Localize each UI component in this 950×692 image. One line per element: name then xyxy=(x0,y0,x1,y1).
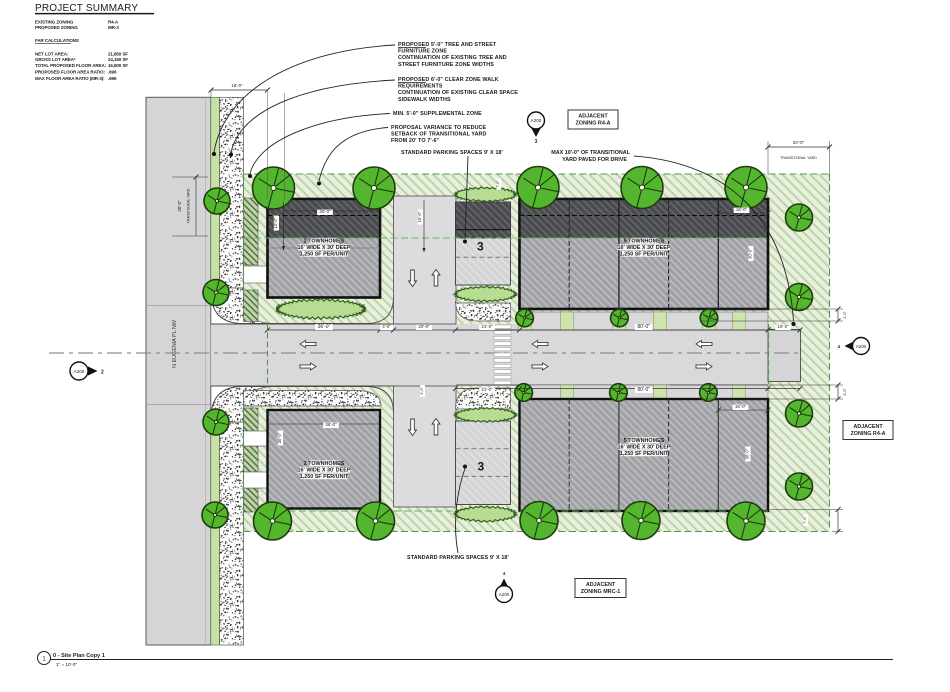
svg-text:7'-6": 7'-6" xyxy=(496,180,500,188)
svg-text:CONTINUATION OF EXISTING CLEAR: CONTINUATION OF EXISTING CLEAR SPACE xyxy=(398,90,518,96)
svg-text:4: 4 xyxy=(837,344,840,349)
svg-text:ZONING R4-A: ZONING R4-A xyxy=(850,431,885,437)
svg-text:A200: A200 xyxy=(531,118,542,123)
svg-text:A200: A200 xyxy=(856,344,867,349)
svg-text:16' WIDE X 30' DEEP: 16' WIDE X 30' DEEP xyxy=(298,245,351,251)
svg-text:20'-0": 20'-0" xyxy=(793,140,805,145)
svg-text:16'-0": 16'-0" xyxy=(735,404,747,409)
svg-text:STANDARD PARKING SPACES 9' X 1: STANDARD PARKING SPACES 9' X 18' xyxy=(401,150,503,156)
svg-text:MAX FLOOR AREA RATIO (MR-3):: MAX FLOOR AREA RATIO (MR-3): xyxy=(35,76,105,81)
svg-text:1,250 SF PER/UNIT: 1,250 SF PER/UNIT xyxy=(620,451,669,457)
svg-text:80'-0": 80'-0" xyxy=(637,324,650,330)
svg-text:ZONING MRC-1: ZONING MRC-1 xyxy=(581,589,621,595)
svg-text:ADJACENT: ADJACENT xyxy=(853,424,883,430)
svg-text:GROSS LOT AREA*: GROSS LOT AREA* xyxy=(35,57,76,62)
svg-text:5 TOWNHOMES: 5 TOWNHOMES xyxy=(624,438,665,444)
svg-text:3: 3 xyxy=(478,460,485,474)
svg-text:16' WIDE X 30' DEEP: 16' WIDE X 30' DEEP xyxy=(618,445,671,451)
svg-text:2 TOWNHOMES: 2 TOWNHOMES xyxy=(304,239,345,245)
svg-text:5 TOWNHOMES: 5 TOWNHOMES xyxy=(624,239,665,245)
svg-text:21'-0": 21'-0" xyxy=(481,387,493,392)
svg-text:4'-0": 4'-0" xyxy=(843,388,847,396)
svg-text:FURNITURE ZONE: FURNITURE ZONE xyxy=(398,49,447,55)
svg-text:.696: .696 xyxy=(108,69,117,74)
svg-text:0 - Site Plan Copy 1: 0 - Site Plan Copy 1 xyxy=(53,653,105,659)
svg-text:16,800 SF: 16,800 SF xyxy=(108,63,128,68)
svg-text:.696: .696 xyxy=(108,76,117,81)
svg-text:16' WIDE X 30' DEEP: 16' WIDE X 30' DEEP xyxy=(618,245,671,251)
svg-text:YARD PAVED FOR DRIVE: YARD PAVED FOR DRIVE xyxy=(562,157,627,163)
svg-text:30'-0": 30'-0" xyxy=(277,432,282,443)
svg-text:MIN. 5'-0" SUPPLEMENTAL ZONE: MIN. 5'-0" SUPPLEMENTAL ZONE xyxy=(393,111,482,117)
svg-text:TRANSITIONAL YARD: TRANSITIONAL YARD xyxy=(187,188,191,223)
svg-text:MAX 10'-0" OF TRANSITIONAL: MAX 10'-0" OF TRANSITIONAL xyxy=(551,150,630,156)
svg-text:1" = 10'-0": 1" = 10'-0" xyxy=(56,662,77,667)
svg-text:NET LOT AREA:: NET LOT AREA: xyxy=(35,52,69,57)
svg-text:4'-0": 4'-0" xyxy=(843,311,847,319)
svg-text:TOTAL PROPOSED FLOOR AREA:: TOTAL PROPOSED FLOOR AREA: xyxy=(35,63,107,68)
svg-text:3: 3 xyxy=(535,139,538,145)
svg-text:20'-0": 20'-0" xyxy=(177,200,182,212)
svg-text:2: 2 xyxy=(101,370,104,376)
svg-text:30'-0": 30'-0" xyxy=(748,248,753,259)
svg-text:1,250 SF PER/UNIT: 1,250 SF PER/UNIT xyxy=(620,252,669,258)
svg-text:21'-0": 21'-0" xyxy=(481,324,493,329)
svg-text:STANDARD PARKING SPACES 9' X 1: STANDARD PARKING SPACES 9' X 18' xyxy=(407,555,509,561)
svg-text:16'-0": 16'-0" xyxy=(736,207,748,212)
svg-text:PROJECT SUMMARY: PROJECT SUMMARY xyxy=(35,3,138,14)
svg-text:15'-0": 15'-0" xyxy=(417,211,422,222)
svg-text:1,250 SF PER/UNIT: 1,250 SF PER/UNIT xyxy=(300,474,349,480)
svg-text:REQUIREMENTS: REQUIREMENTS xyxy=(398,84,443,90)
svg-text:FAR CALCULATIONS: FAR CALCULATIONS xyxy=(35,38,79,43)
svg-text:SETBACK OF TRANSITIONAL YARD: SETBACK OF TRANSITIONAL YARD xyxy=(391,132,487,138)
svg-text:ADJACENT: ADJACENT xyxy=(578,114,608,120)
svg-text:MR-3: MR-3 xyxy=(108,25,119,30)
svg-text:FROM 20' TO 7'-6": FROM 20' TO 7'-6" xyxy=(391,138,440,144)
svg-text:ADJACENT: ADJACENT xyxy=(586,582,616,588)
svg-text:4'-0": 4'-0" xyxy=(382,324,391,329)
svg-text:7'-6": 7'-6" xyxy=(803,516,807,524)
svg-text:ZONING R4-A: ZONING R4-A xyxy=(575,121,610,127)
svg-text:R4-A: R4-A xyxy=(108,20,119,25)
svg-text:SIDEWALK WIDTHS: SIDEWALK WIDTHS xyxy=(398,97,451,103)
svg-text:24,150 SF: 24,150 SF xyxy=(108,57,128,62)
svg-text:1,250 SF PER/UNIT: 1,250 SF PER/UNIT xyxy=(300,252,349,258)
svg-text:80'-0": 80'-0" xyxy=(637,387,650,393)
svg-text:STREET FURNITURE ZONE WIDTHS: STREET FURNITURE ZONE WIDTHS xyxy=(398,62,494,68)
svg-text:16' WIDE X 30' DEEP: 16' WIDE X 30' DEEP xyxy=(298,468,351,474)
svg-text:TRANSITIONAL YARD: TRANSITIONAL YARD xyxy=(780,156,817,160)
svg-text:10'-0": 10'-0" xyxy=(777,324,789,329)
svg-text:36'-0": 36'-0" xyxy=(318,324,331,330)
svg-text:10'-0": 10'-0" xyxy=(273,217,278,228)
svg-text:CONTINUATION OF EXISTING TREE: CONTINUATION OF EXISTING TREE AND xyxy=(398,55,507,61)
svg-text:30'-0": 30'-0" xyxy=(745,448,750,459)
svg-text:36'-0": 36'-0" xyxy=(325,422,337,427)
svg-text:N EUGENIA PL NW: N EUGENIA PL NW xyxy=(172,319,178,368)
svg-text:PROPOSAL VARIANCE TO REDUCE: PROPOSAL VARIANCE TO REDUCE xyxy=(391,125,487,131)
svg-text:30'-0": 30'-0" xyxy=(319,209,331,214)
svg-text:21,850 SF: 21,850 SF xyxy=(108,52,128,57)
svg-text:A200: A200 xyxy=(74,369,85,374)
svg-text:PROPOSED FLOOR AREA RATIO:: PROPOSED FLOOR AREA RATIO: xyxy=(35,69,106,74)
svg-text:2 TOWNHOMES: 2 TOWNHOMES xyxy=(304,461,345,467)
svg-text:4: 4 xyxy=(503,571,506,576)
svg-text:4'-0": 4'-0" xyxy=(420,387,424,395)
svg-text:20'-0": 20'-0" xyxy=(418,324,430,329)
svg-text:PROPOSED ZONING: PROPOSED ZONING xyxy=(35,25,78,30)
svg-text:18'-0": 18'-0" xyxy=(231,83,243,88)
svg-text:EXISTING ZONING: EXISTING ZONING xyxy=(35,20,74,25)
svg-text:A200: A200 xyxy=(499,592,510,597)
svg-text:3: 3 xyxy=(477,240,484,254)
